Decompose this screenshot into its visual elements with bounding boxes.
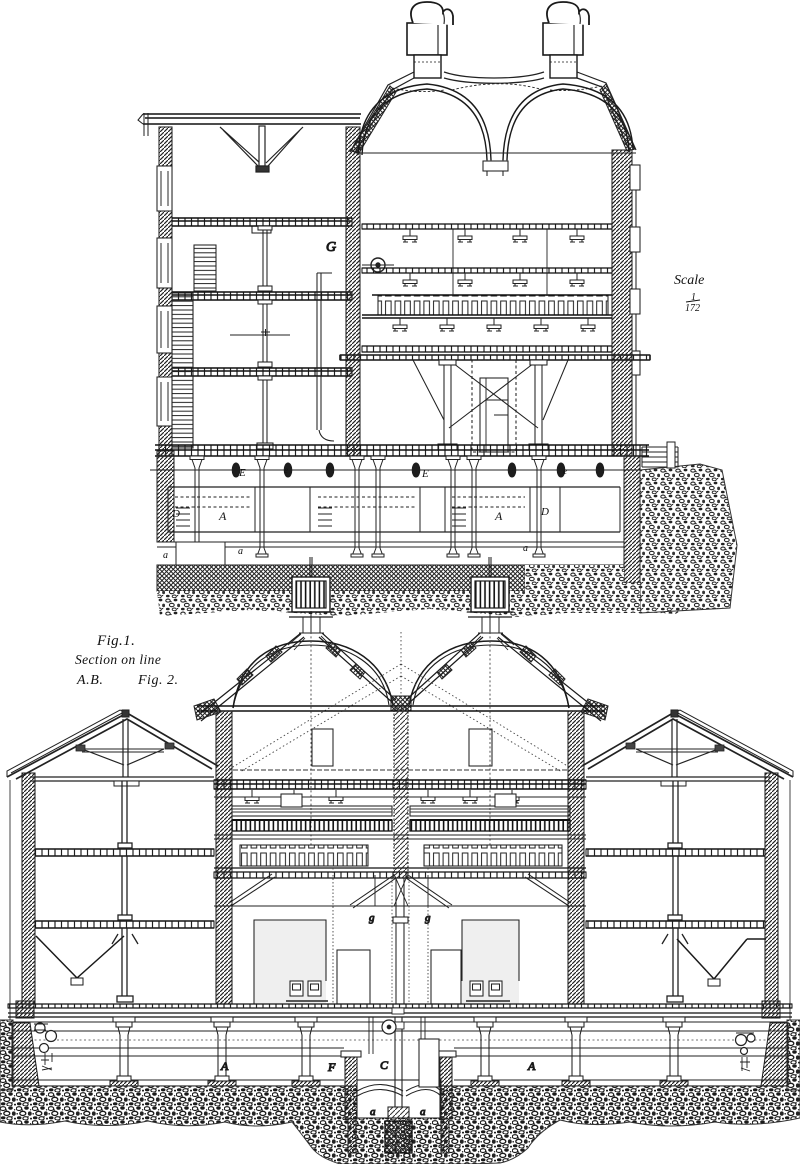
svg-text:a: a bbox=[370, 1106, 376, 1118]
svg-text:g: g bbox=[369, 912, 375, 924]
svg-text:A: A bbox=[220, 1059, 229, 1073]
svg-text:A: A bbox=[218, 509, 227, 523]
svg-text:Fig. 2.: Fig. 2. bbox=[137, 673, 178, 688]
svg-text:A.B.: A.B. bbox=[76, 673, 104, 688]
svg-text:G: G bbox=[326, 240, 336, 255]
svg-text:E: E bbox=[421, 468, 429, 480]
svg-text:a: a bbox=[523, 543, 528, 554]
svg-text:C: C bbox=[380, 1058, 389, 1072]
svg-text:A: A bbox=[494, 509, 503, 523]
svg-text:172: 172 bbox=[685, 303, 700, 314]
svg-text:a: a bbox=[163, 550, 168, 561]
svg-text:e: e bbox=[284, 465, 288, 475]
svg-text:E: E bbox=[238, 467, 246, 479]
svg-text:Fig.1.: Fig.1. bbox=[96, 633, 135, 649]
svg-text:D: D bbox=[540, 506, 549, 518]
svg-text:Scale: Scale bbox=[674, 273, 704, 288]
svg-text:A: A bbox=[527, 1059, 536, 1073]
svg-text:Section on line: Section on line bbox=[75, 652, 161, 667]
svg-text:a: a bbox=[238, 546, 243, 557]
svg-text:F: F bbox=[327, 1060, 336, 1074]
svg-text:e: e bbox=[563, 466, 567, 476]
svg-text:a: a bbox=[420, 1106, 426, 1118]
